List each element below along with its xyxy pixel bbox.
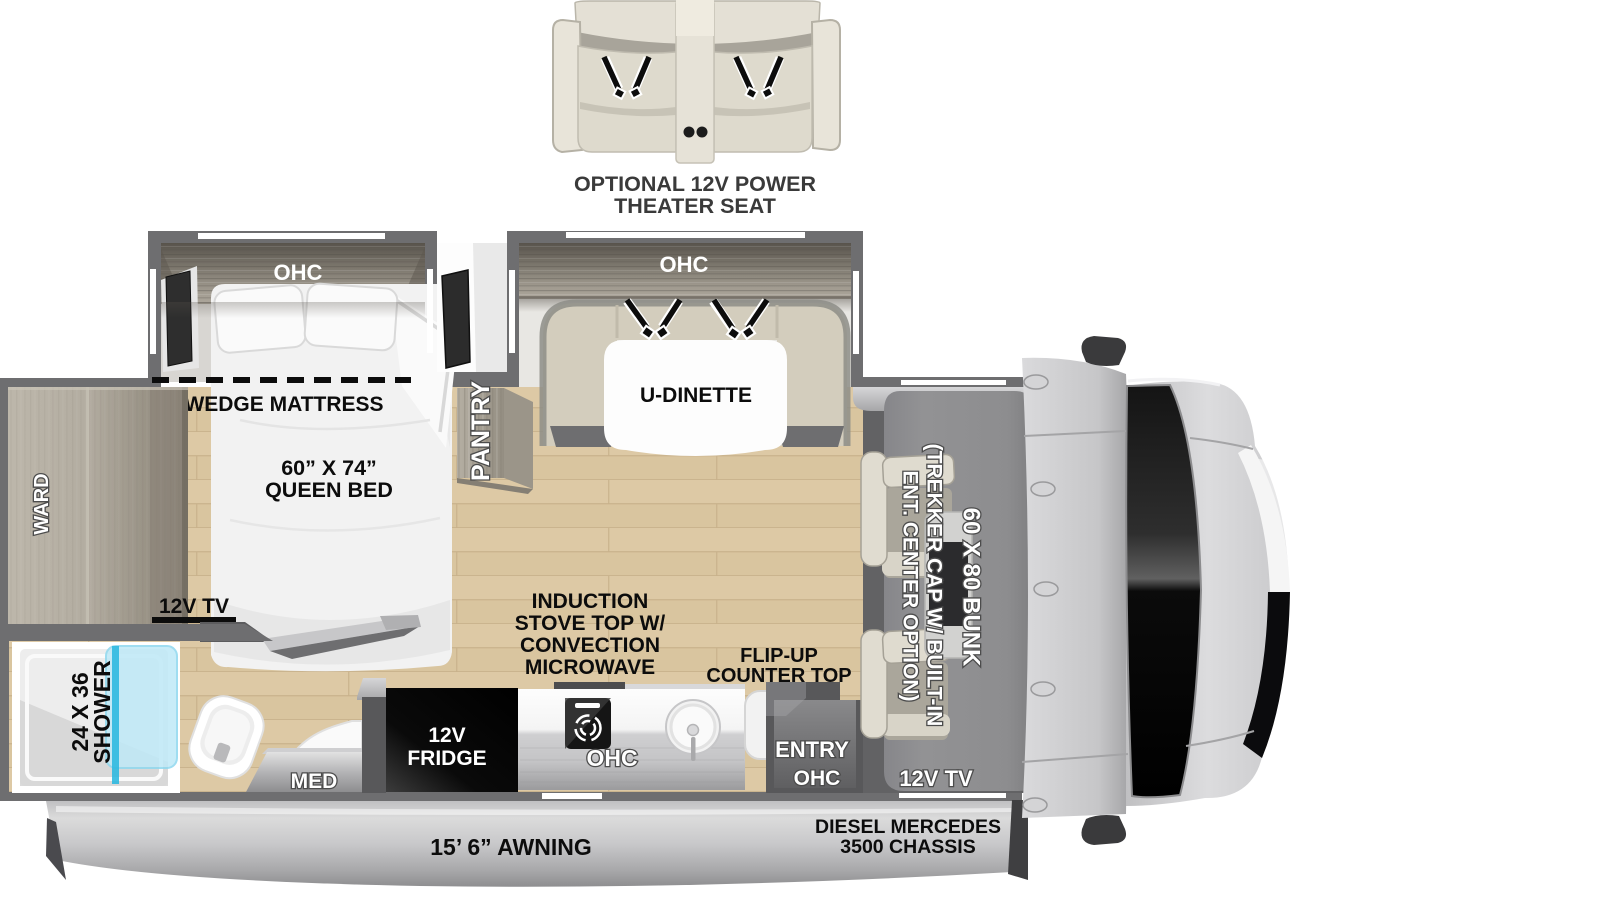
svg-text:ENT. CENTER OPTION): ENT. CENTER OPTION): [899, 470, 922, 701]
svg-text:CONVECTION: CONVECTION: [520, 634, 660, 657]
svg-text:OHC: OHC: [586, 745, 637, 771]
svg-text:(TREKKER CAP W/ BUILT-IN: (TREKKER CAP W/ BUILT-IN: [923, 444, 946, 727]
svg-text:PANTRY: PANTRY: [467, 381, 495, 481]
svg-text:FLIP-UP: FLIP-UP: [740, 645, 818, 667]
svg-text:OHC: OHC: [660, 252, 709, 277]
svg-text:12V TV: 12V TV: [899, 766, 973, 791]
svg-text:WARD: WARD: [31, 473, 53, 534]
svg-text:WEDGE MATTRESS: WEDGE MATTRESS: [184, 393, 383, 416]
svg-text:60 X 80 BUNK: 60 X 80 BUNK: [958, 508, 985, 667]
svg-text:OHC: OHC: [794, 767, 841, 790]
svg-text:QUEEN BED: QUEEN BED: [265, 478, 393, 502]
svg-text:MICROWAVE: MICROWAVE: [525, 656, 655, 679]
svg-text:SHOWER: SHOWER: [89, 660, 115, 764]
svg-text:STOVE TOP W/: STOVE TOP W/: [515, 612, 666, 635]
svg-text:15’ 6” AWNING: 15’ 6” AWNING: [430, 834, 591, 860]
svg-text:MED: MED: [291, 770, 338, 793]
svg-text:FRIDGE: FRIDGE: [407, 747, 486, 770]
svg-text:3500 CHASSIS: 3500 CHASSIS: [840, 836, 975, 858]
svg-text:OPTIONAL 12V POWER: OPTIONAL 12V POWER: [574, 172, 817, 196]
svg-text:60” X 74”: 60” X 74”: [281, 456, 377, 480]
svg-text:12V TV: 12V TV: [159, 595, 229, 618]
svg-text:DIESEL MERCEDES: DIESEL MERCEDES: [815, 816, 1001, 838]
svg-text:12V: 12V: [428, 724, 465, 747]
svg-text:ENTRY: ENTRY: [775, 737, 849, 762]
svg-text:THEATER SEAT: THEATER SEAT: [614, 194, 776, 218]
svg-text:U-DINETTE: U-DINETTE: [640, 384, 752, 407]
svg-text:OHC: OHC: [274, 260, 323, 285]
svg-text:INDUCTION: INDUCTION: [532, 590, 649, 613]
